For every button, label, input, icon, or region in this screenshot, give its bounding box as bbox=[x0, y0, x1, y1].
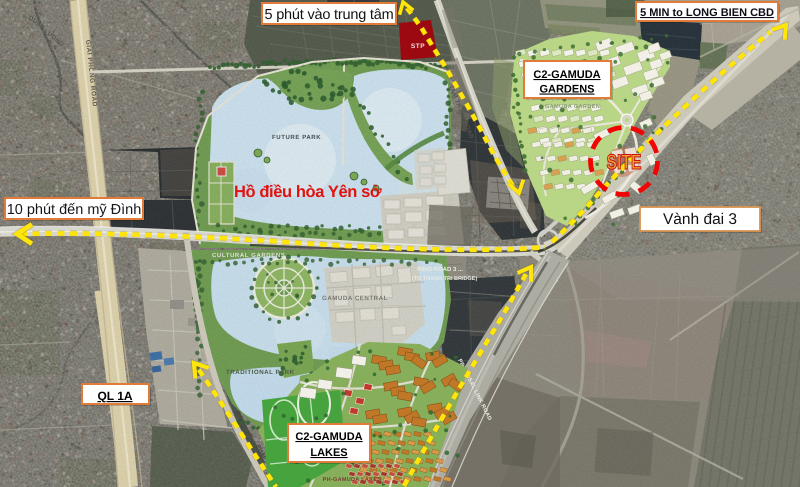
svg-text:PH-GAMUDA LAKES: PH-GAMUDA LAKES bbox=[323, 477, 382, 483]
svg-text:QL 1A: QL 1A bbox=[97, 389, 132, 403]
svg-text:10 phút đến mỹ Đình: 10 phút đến mỹ Đình bbox=[7, 202, 142, 218]
svg-text:RING ROAD 3 ...: RING ROAD 3 ... bbox=[417, 266, 463, 273]
svg-text:C2-GAMUDA: C2-GAMUDA bbox=[533, 69, 600, 81]
svg-text:C2-GAMUDA: C2-GAMUDA bbox=[295, 431, 362, 443]
svg-text:Hồ điều hòa Yên sở: Hồ điều hòa Yên sở bbox=[234, 183, 382, 201]
svg-text:Vành đai 3: Vành đai 3 bbox=[663, 211, 737, 228]
svg-text:STP: STP bbox=[411, 43, 425, 50]
svg-text:5 MIN to LONG BIEN CBD: 5 MIN to LONG BIEN CBD bbox=[640, 7, 774, 19]
svg-text:(TO THANH TRI BRIDGE): (TO THANH TRI BRIDGE) bbox=[412, 276, 477, 282]
svg-text:LAKES: LAKES bbox=[310, 447, 347, 459]
svg-text:5 phút vào trung tâm: 5 phút vào trung tâm bbox=[265, 7, 394, 23]
svg-text:SITE: SITE bbox=[607, 151, 642, 174]
svg-text:GARDENS: GARDENS bbox=[539, 84, 594, 96]
svg-text:GAMUDA GARDEN: GAMUDA GARDEN bbox=[545, 104, 600, 110]
